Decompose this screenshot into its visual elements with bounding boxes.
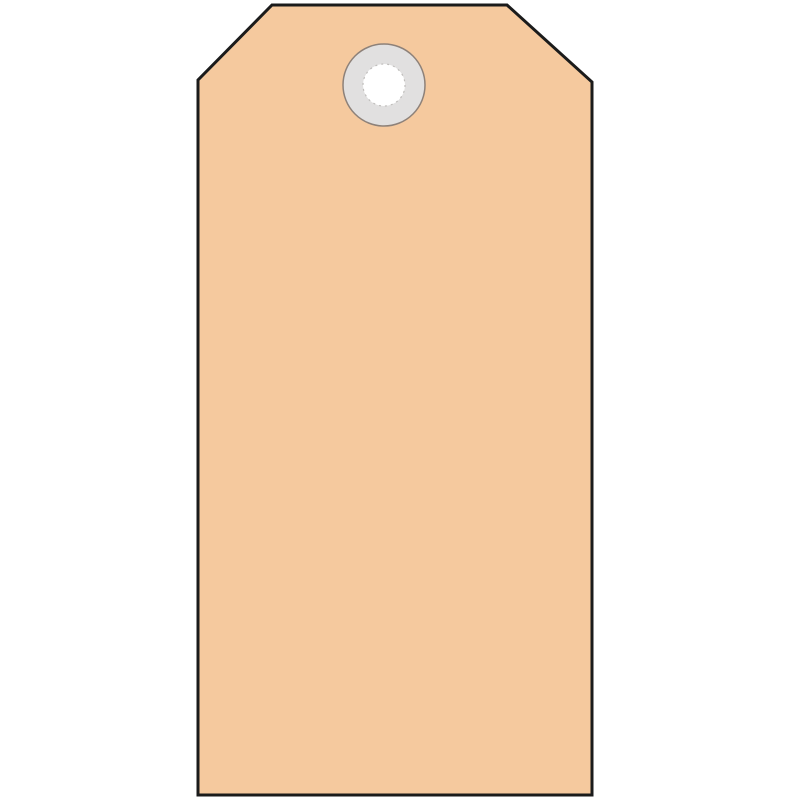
- shipping-tag-image: [0, 0, 800, 800]
- product-image-canvas: [0, 0, 800, 800]
- eyelet-hole: [363, 64, 405, 106]
